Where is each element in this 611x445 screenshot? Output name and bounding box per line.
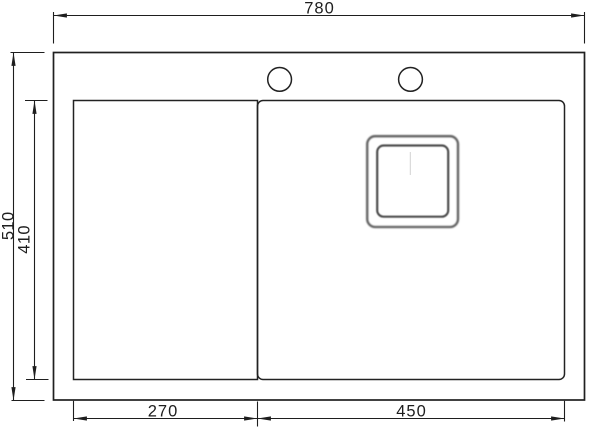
svg-text:410: 410 <box>16 225 34 254</box>
svg-text:270: 270 <box>148 402 179 420</box>
svg-text:450: 450 <box>396 403 427 421</box>
svg-text:780: 780 <box>304 0 335 17</box>
